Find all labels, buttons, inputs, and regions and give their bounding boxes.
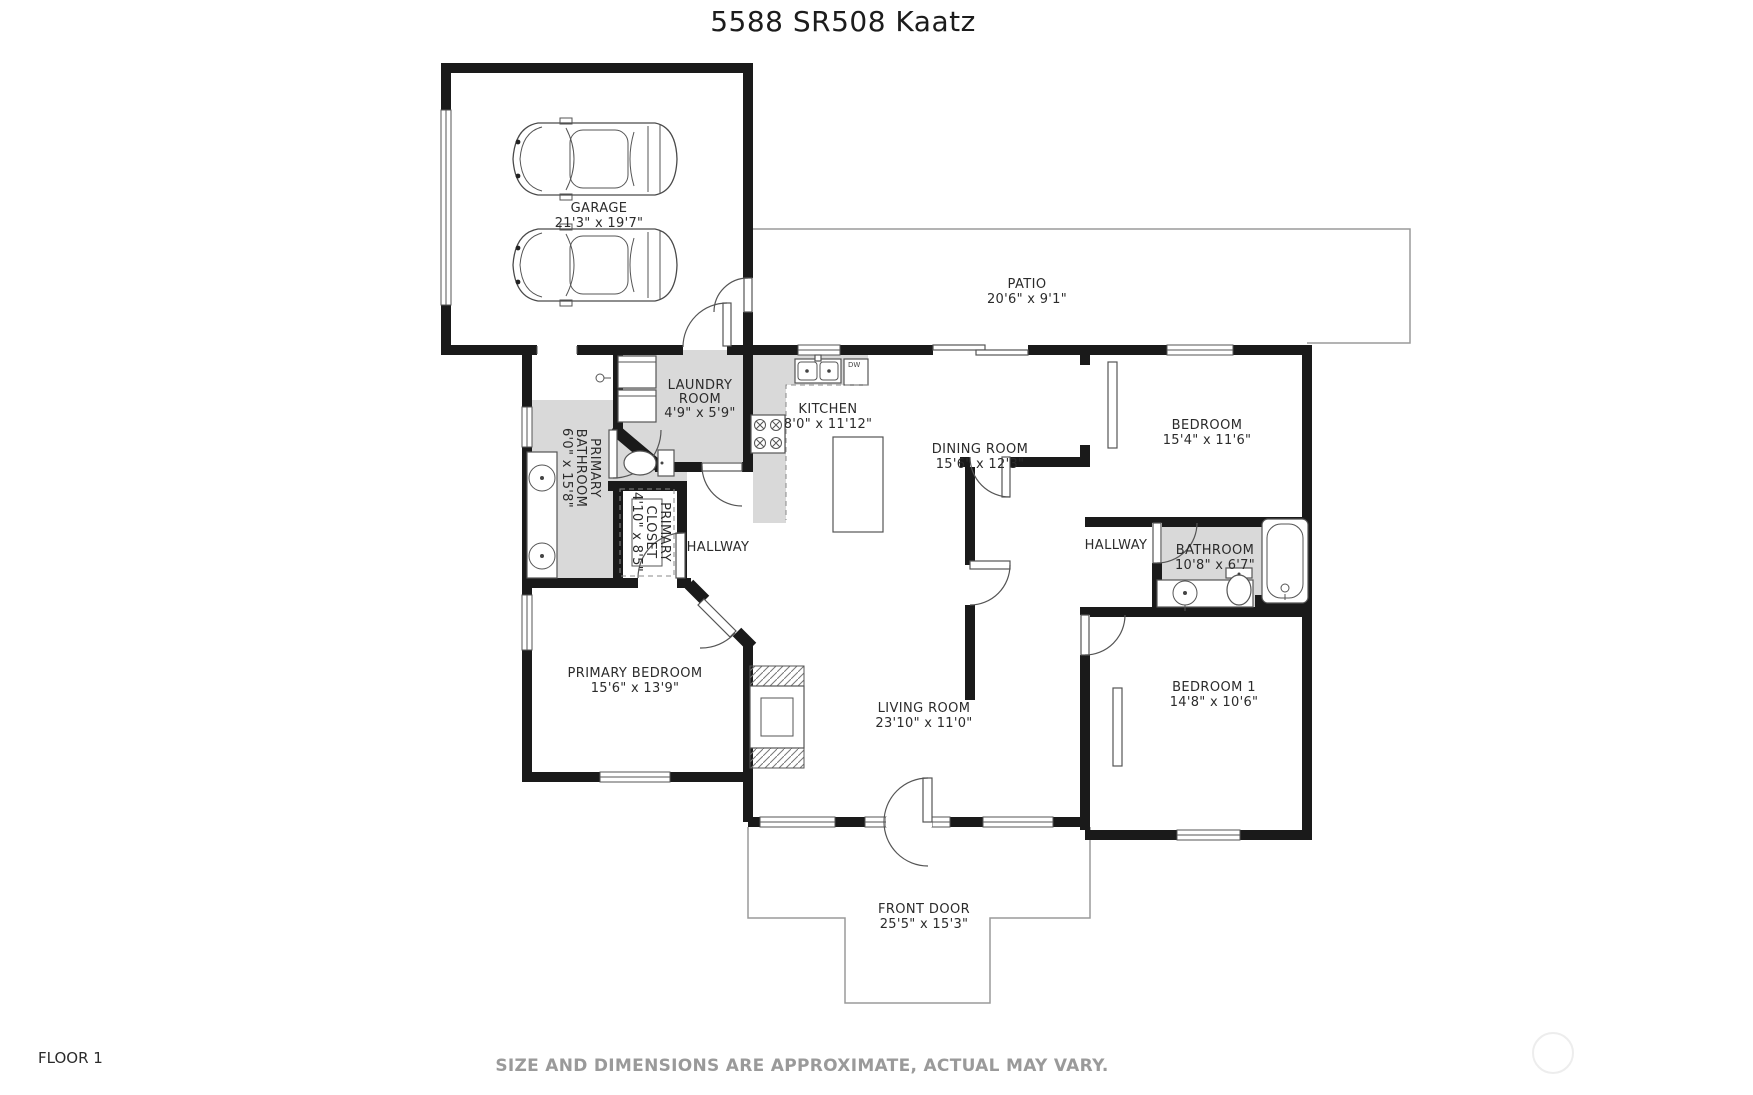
svg-text:GARAGE: GARAGE [571,201,628,216]
living-room-window-3 [932,817,950,827]
bathtub-icon [1262,519,1308,603]
garage-laundry-door [683,303,731,347]
svg-text:25'5" x 15'3": 25'5" x 15'3" [880,917,969,932]
garage-house-opening [537,345,577,355]
bedroom-1-closet-panel [1113,688,1122,766]
living-room-window-1 [760,817,835,827]
svg-text:CLOSET: CLOSET [643,506,658,559]
bedroom-1-window [1177,830,1240,840]
living-hallway-door [965,561,1010,605]
svg-text:15'6" x 13'9": 15'6" x 13'9" [591,681,680,696]
room-label-primary-closet: PRIMARY CLOSET 4'10" x 8'5" [629,492,672,572]
primary-bedroom-side-window [522,595,532,650]
svg-text:DINING ROOM: DINING ROOM [932,442,1028,457]
svg-text:10'8" x 6'7": 10'8" x 6'7" [1175,558,1255,573]
room-label-patio: PATIO 20'6" x 9'1" [987,277,1067,307]
garage-patio-door [714,278,753,312]
room-label-bathroom: BATHROOM 10'8" x 6'7" [1175,543,1255,573]
svg-text:BATHROOM: BATHROOM [573,429,588,507]
laundry-hallway-door [702,462,742,506]
svg-text:BEDROOM: BEDROOM [1172,418,1243,433]
svg-text:KITCHEN: KITCHEN [798,402,857,417]
svg-text:DW: DW [848,361,860,369]
svg-text:BATHROOM: BATHROOM [1176,543,1254,558]
svg-text:6'0" x 15'8": 6'0" x 15'8" [559,428,574,508]
svg-text:PRIMARY BEDROOM: PRIMARY BEDROOM [568,666,703,681]
svg-text:15'6" x 12'3": 15'6" x 12'3" [936,457,1025,472]
svg-text:15'4" x 11'6": 15'4" x 11'6" [1163,433,1252,448]
room-label-bedroom: BEDROOM 15'4" x 11'6" [1163,418,1252,448]
car-icon [513,224,677,306]
watermark-logo [1533,1033,1573,1073]
floor-label: FLOOR 1 [38,1049,103,1067]
svg-text:4'10" x 8'5": 4'10" x 8'5" [629,492,644,572]
kitchen-island [833,437,883,532]
svg-text:ROOM: ROOM [679,392,721,407]
bedroom-window [1167,345,1233,355]
primary-bedroom-door [698,599,736,648]
svg-text:LAUNDRY: LAUNDRY [668,378,733,393]
room-label-front-door: FRONT DOOR 25'5" x 15'3" [878,902,970,932]
disclaimer-text: SIZE AND DIMENSIONS ARE APPROXIMATE, ACT… [495,1056,1108,1076]
bedroom-pocket-door [1080,362,1117,448]
svg-text:PRIMARY: PRIMARY [587,438,602,498]
room-label-hallway-left: HALLWAY [687,540,750,555]
toilet-icon [1226,568,1252,605]
room-label-kitchen: KITCHEN 8'0" x 11'12" [784,402,873,432]
primary-bathroom-window [522,407,532,447]
svg-text:BEDROOM 1: BEDROOM 1 [1172,680,1256,695]
room-label-bedroom-1: BEDROOM 1 14'8" x 10'6" [1170,680,1259,710]
toilet-icon [624,450,674,476]
patio-sliding-door [933,345,1028,355]
page-title: 5588 SR508 Kaatz [710,5,976,38]
dishwasher: DW [844,359,868,385]
kitchen-window [798,345,840,355]
kitchen-counter-side [753,385,786,523]
svg-text:4'9" x 5'9": 4'9" x 5'9" [664,406,735,421]
primary-bedroom-window [600,772,670,782]
room-label-garage: GARAGE 21'3" x 19'7" [555,201,644,231]
svg-text:LIVING ROOM: LIVING ROOM [878,701,971,716]
svg-text:FRONT DOOR: FRONT DOOR [878,902,970,917]
room-label-hallway-right: HALLWAY [1085,538,1148,553]
svg-text:14'8" x 10'6": 14'8" x 10'6" [1170,695,1259,710]
svg-text:8'0" x 11'12": 8'0" x 11'12" [784,417,873,432]
room-label-living-room: LIVING ROOM 23'10" x 11'0" [875,701,972,731]
svg-text:23'10" x 11'0": 23'10" x 11'0" [875,716,972,731]
patio-outline [753,229,1410,343]
room-label-primary-bedroom: PRIMARY BEDROOM 15'6" x 13'9" [568,666,703,696]
svg-text:21'3" x 19'7": 21'3" x 19'7" [555,216,644,231]
double-vanity-sink [527,452,557,578]
garage-door [441,110,451,305]
living-room-window-2 [865,817,886,827]
svg-text:PATIO: PATIO [1008,277,1047,292]
kitchen-sink [795,355,841,383]
svg-text:PRIMARY: PRIMARY [657,502,672,562]
front-door [884,778,932,866]
floor-plan-page: DW [0,0,1753,1095]
svg-text:20'6" x 9'1": 20'6" x 9'1" [987,292,1067,307]
utility-faucet [596,374,611,382]
room-label-dining-room: DINING ROOM 15'6" x 12'3" [932,442,1028,472]
floor-plan-canvas: DW [0,0,1753,1095]
living-room-window-4 [983,817,1053,827]
stove-icon [751,415,785,453]
car-icon [513,118,677,200]
room-label-primary-bathroom: PRIMARY BATHROOM 6'0" x 15'8" [559,428,602,508]
bedroom-1-door [1080,615,1125,655]
fireplace-icon [750,666,804,768]
